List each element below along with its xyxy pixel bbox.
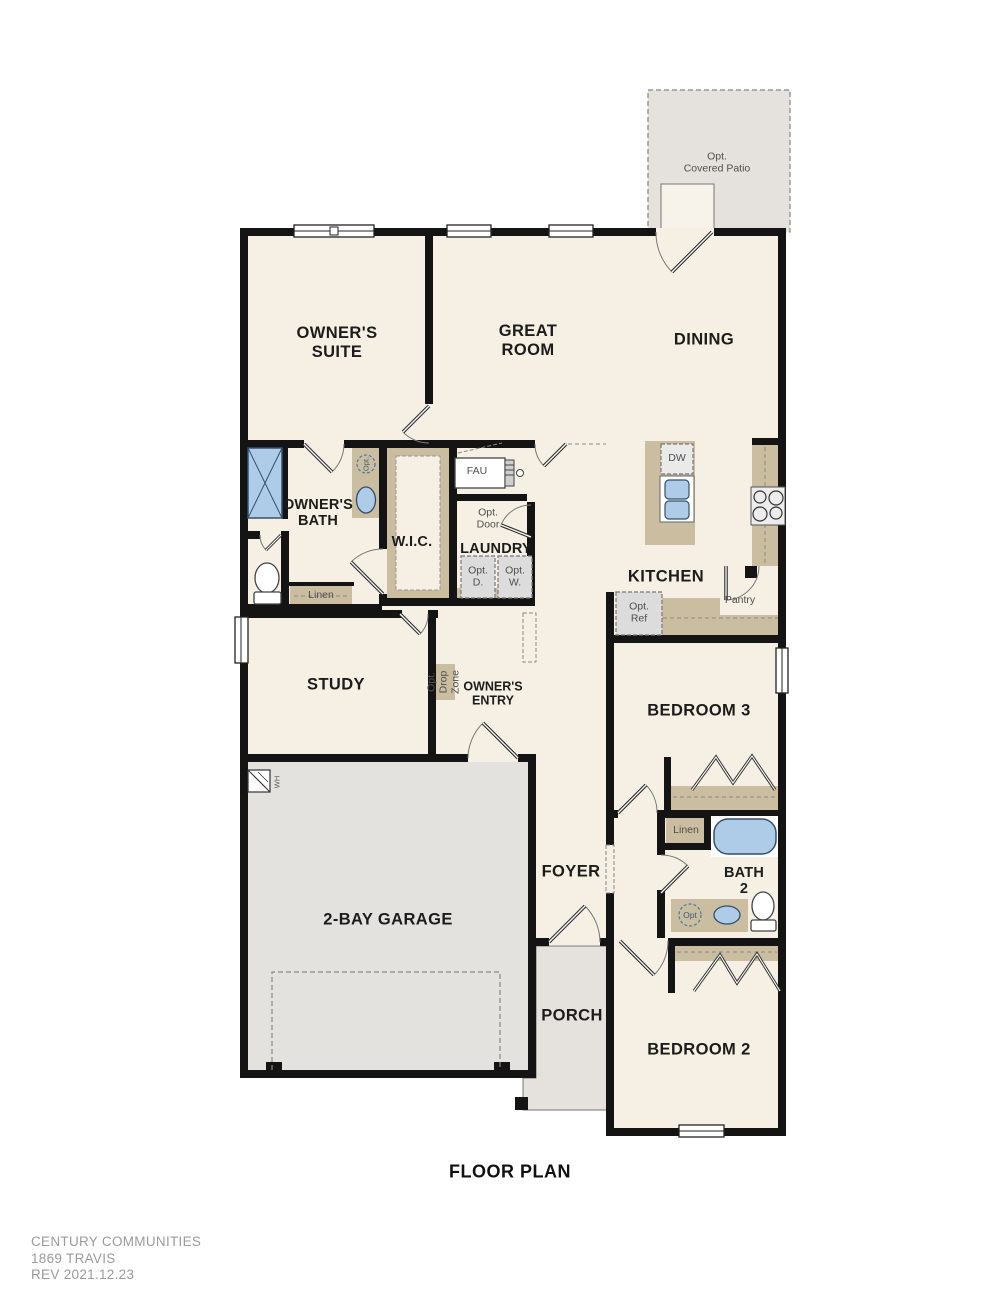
- water-heater-icon: [248, 770, 270, 792]
- window: [549, 225, 593, 237]
- room-label-covered-patio: Opt. Covered Patio: [684, 151, 751, 175]
- floor-plan-drawing: [0, 0, 1000, 1294]
- footer-revision: REV 2021.12.23: [31, 1267, 201, 1284]
- page-title: FLOOR PLAN: [449, 1162, 571, 1183]
- porch-slab: [523, 946, 612, 1110]
- window: [776, 648, 788, 693]
- kitchen-counter-bottom: [661, 598, 720, 635]
- room-label-bedroom2: BEDROOM 2: [647, 1041, 751, 1060]
- footer-plan-name: 1869 TRAVIS: [31, 1251, 201, 1268]
- room-label-garage: 2-BAY GARAGE: [323, 911, 453, 930]
- footer-company: CENTURY COMMUNITIES: [31, 1234, 201, 1251]
- opt-washer-label: Opt. W.: [505, 565, 525, 589]
- tub-icon: [711, 816, 778, 857]
- room-label-great-room: GREAT ROOM: [499, 322, 558, 360]
- window: [294, 225, 374, 237]
- water-heater-label: WH: [273, 776, 282, 789]
- opt-drop-zone-label: Opt. Drop Zone: [426, 670, 461, 694]
- room-label-owners-entry: OWNER'S ENTRY: [463, 680, 522, 709]
- bath2-toilet-icon: [751, 892, 776, 931]
- porch-post: [515, 1097, 528, 1110]
- bath2-linen-label: Linen: [673, 825, 699, 837]
- window: [447, 225, 491, 237]
- room-label-kitchen: KITCHEN: [628, 568, 704, 587]
- toilet-icon: [254, 563, 281, 604]
- opt-door-label: Opt. Door: [477, 507, 500, 531]
- window: [235, 617, 248, 663]
- room-label-bath2: BATH 2: [724, 865, 764, 897]
- window: [679, 1125, 724, 1137]
- room-label-owners-suite: OWNER'S SUITE: [297, 324, 378, 362]
- island-sink-icon: [660, 476, 694, 522]
- room-label-study: STUDY: [307, 676, 365, 695]
- dishwasher-label: DW: [668, 453, 686, 465]
- cased-opening-foyer: [606, 845, 614, 893]
- cooktop-icon: [751, 487, 785, 525]
- room-label-bedroom3: BEDROOM 3: [647, 702, 751, 721]
- room-label-laundry: LAUNDRY: [460, 541, 532, 557]
- shower-icon: [248, 448, 282, 518]
- opt-sink-owners-label: Opt.: [362, 457, 371, 471]
- fau-unit-icon: [455, 458, 524, 488]
- room-label-wic: W.I.C.: [392, 534, 433, 550]
- bedroom2-closet-shelf: [675, 946, 779, 961]
- patio-nook: [661, 184, 714, 233]
- floor-plan-page: Opt. Covered Patio OWNER'S SUITE GREAT R…: [0, 0, 1000, 1294]
- room-label-dining: DINING: [674, 331, 734, 350]
- owners-linen-label: Linen: [308, 590, 334, 602]
- bedroom3-closet-shelf: [671, 786, 779, 812]
- plan-footer: CENTURY COMMUNITIES 1869 TRAVIS REV 2021…: [31, 1234, 201, 1284]
- fau-label: FAU: [467, 466, 487, 478]
- room-label-foyer: FOYER: [542, 863, 601, 882]
- opt-sink-bath2-label: Opt: [683, 910, 697, 920]
- room-label-owners-bath: OWNER'S BATH: [283, 497, 353, 529]
- room-label-porch: PORCH: [541, 1007, 603, 1026]
- opt-dryer-label: Opt. D.: [468, 565, 488, 589]
- opt-ref-label: Opt. Ref: [629, 601, 649, 625]
- pantry-label: Pantry: [725, 595, 755, 607]
